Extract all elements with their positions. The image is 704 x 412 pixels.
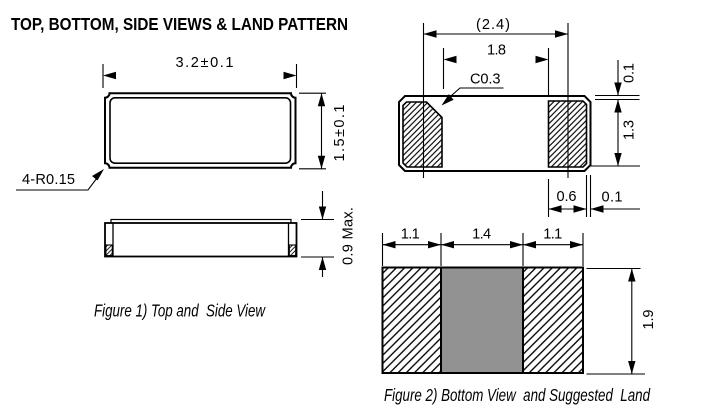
svg-text:1.5±0.1: 1.5±0.1 [332,105,348,162]
svg-text:1.4: 1.4 [472,227,491,243]
svg-text:1.1: 1.1 [401,227,420,243]
svg-text:(2.4): (2.4) [476,17,510,33]
svg-text:4-R0.15: 4-R0.15 [22,172,75,188]
svg-text:0.6: 0.6 [557,189,577,205]
svg-text:1.1: 1.1 [543,227,562,243]
svg-text:C0.3: C0.3 [470,72,501,88]
svg-text:1.8: 1.8 [487,43,506,59]
svg-text:0.9 Max.: 0.9 Max. [341,207,357,265]
svg-text:0.1: 0.1 [622,63,638,83]
svg-text:Figure 1) Top and Side View: Figure 1) Top and Side View [94,301,266,321]
svg-text:3.2±0.1: 3.2±0.1 [176,55,234,71]
svg-text:TOP, BOTTOM, SIDE VIEWS & LAND: TOP, BOTTOM, SIDE VIEWS & LAND PATTERN [11,14,348,34]
svg-text:Figure 2) Bottom View and Sug: Figure 2) Bottom View and Suggested Land [384,385,651,405]
svg-text:1.3: 1.3 [622,120,638,140]
svg-text:0.1: 0.1 [602,190,623,206]
svg-text:1.9: 1.9 [641,310,657,330]
